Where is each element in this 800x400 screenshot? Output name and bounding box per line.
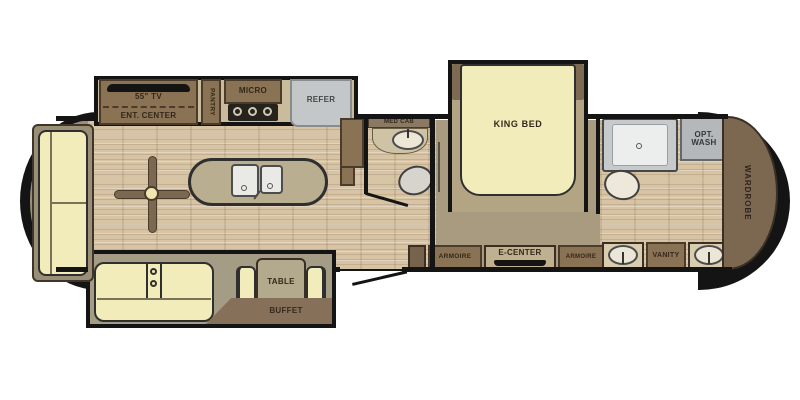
cupholder-icon <box>150 268 157 275</box>
front-sofa-seam <box>52 202 86 204</box>
theater-sofa-seam <box>97 298 211 300</box>
faucet-icon <box>708 252 710 264</box>
island-sink-right <box>260 165 283 194</box>
tv-icon <box>107 84 190 92</box>
wardrobe-label: WARDROBE <box>722 116 772 270</box>
sink-drain-icon <box>267 183 273 189</box>
wall <box>56 116 96 121</box>
ceiling-fan-hub-icon <box>144 186 159 201</box>
wall <box>402 267 732 272</box>
wall <box>584 114 728 119</box>
rv-floorplan: 55" TV ENT. CENTER PANTRY MICRO REFER ME… <box>0 0 800 400</box>
pantry-label: PANTRY <box>201 79 221 125</box>
opt-wash-label: OPT. WASH <box>682 120 726 158</box>
wall <box>354 114 450 119</box>
bedroom-bath-wall <box>596 116 600 214</box>
hall-counter <box>340 168 355 186</box>
e-center-tv-icon <box>494 260 546 266</box>
buffet-label: BUFFET <box>246 302 326 320</box>
faucet-icon <box>407 129 409 138</box>
wall <box>56 267 88 272</box>
king-bed-label: KING BED <box>448 118 588 132</box>
door-side-cabinet <box>408 245 426 269</box>
faucet-icon <box>622 252 624 264</box>
range-burner-icon <box>233 107 242 116</box>
shower-drain-icon <box>636 143 642 149</box>
refer-label: REFER <box>290 93 352 107</box>
armoire-front-label: ARMOIRE <box>428 245 482 269</box>
e-center-label: E-CENTER <box>484 246 556 260</box>
ent-center-label: ENT. CENTER <box>100 110 197 122</box>
tv-label: 55" TV <box>100 92 197 103</box>
vanity-label: VANITY <box>646 242 686 269</box>
entry-door-swing <box>352 270 407 286</box>
armoire-rear-label: ARMOIRE <box>558 245 604 269</box>
entry-door-sill <box>338 269 404 271</box>
bedroom-step-edge <box>438 142 440 192</box>
sink-drain-icon <box>241 185 247 191</box>
range-burner-icon <box>263 107 272 116</box>
range-burner-icon <box>248 107 257 116</box>
hall-cabinet <box>340 118 364 168</box>
half-bath-wall-right <box>430 116 435 270</box>
island-sink-left <box>231 164 259 197</box>
micro-label: MICRO <box>224 81 282 101</box>
ent-center-divider <box>103 106 194 108</box>
half-bath-wall-left <box>364 116 368 194</box>
cupholder-icon <box>150 280 157 287</box>
